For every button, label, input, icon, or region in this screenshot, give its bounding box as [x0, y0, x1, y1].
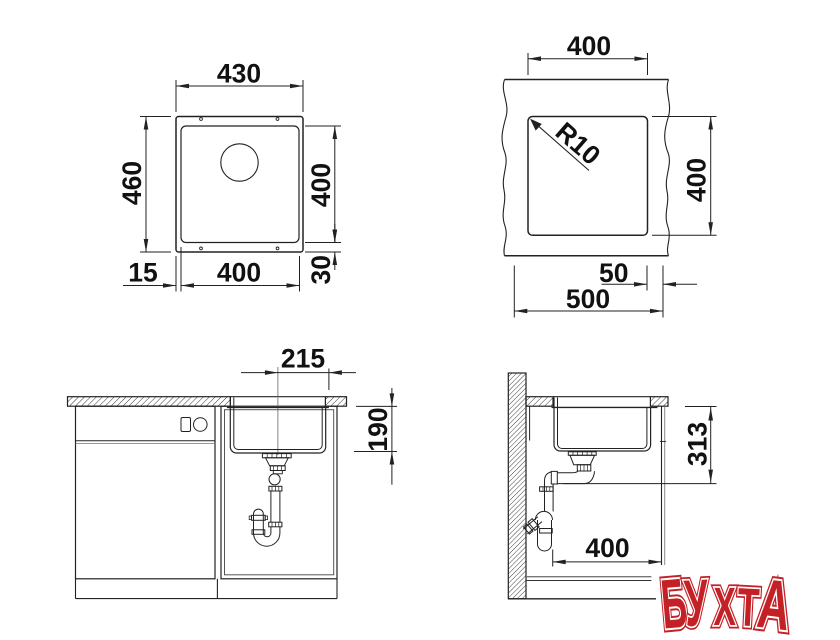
svg-text:400: 400: [306, 163, 336, 207]
svg-text:500: 500: [566, 284, 610, 314]
svg-text:Х: Х: [713, 576, 735, 637]
svg-text:У: У: [683, 566, 712, 640]
svg-text:400: 400: [585, 533, 629, 563]
svg-text:313: 313: [683, 422, 713, 466]
svg-text:400: 400: [682, 158, 712, 202]
svg-text:460: 460: [117, 161, 147, 205]
svg-text:15: 15: [128, 258, 157, 288]
svg-text:190: 190: [363, 407, 393, 451]
svg-text:400: 400: [217, 258, 261, 288]
svg-text:400: 400: [567, 31, 611, 61]
svg-text:30: 30: [306, 255, 336, 284]
svg-text:430: 430: [217, 59, 261, 89]
svg-text:215: 215: [281, 344, 325, 374]
